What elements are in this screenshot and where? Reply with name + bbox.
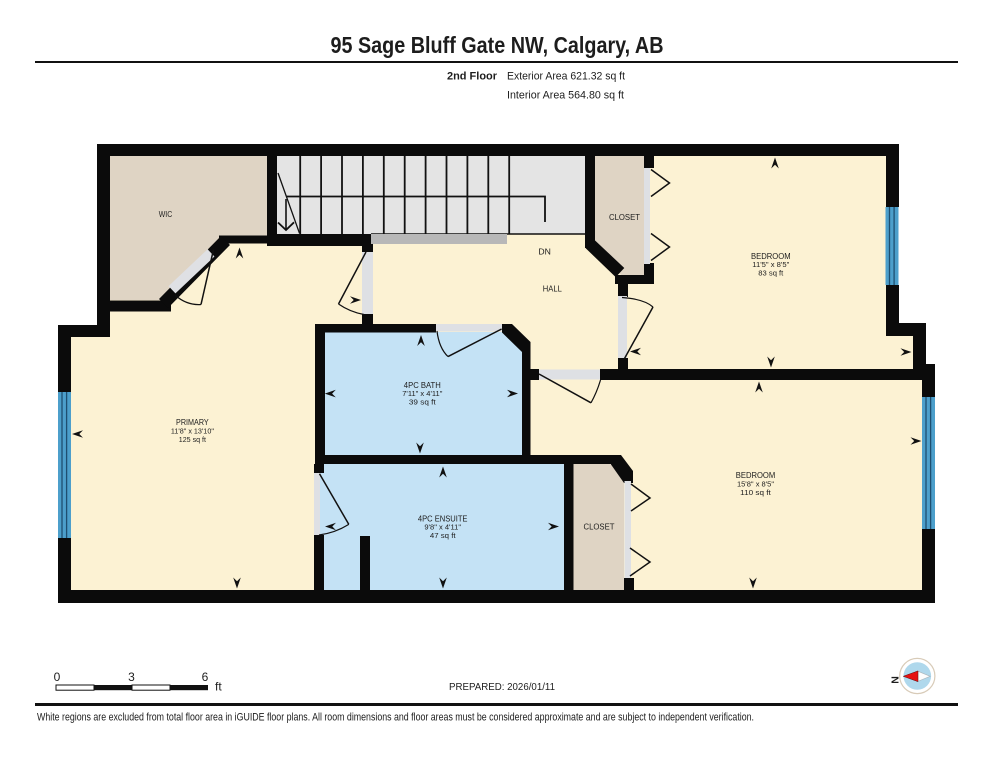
svg-text:CLOSET: CLOSET: [584, 523, 615, 532]
svg-text:39 sq ft: 39 sq ft: [409, 397, 437, 406]
svg-text:47 sq ft: 47 sq ft: [430, 531, 457, 540]
svg-text:2nd Floor: 2nd Floor: [447, 71, 498, 83]
svg-text:Interior Area 564.80 sq ft: Interior Area 564.80 sq ft: [507, 90, 625, 102]
svg-text:110 sq ft: 110 sq ft: [740, 488, 772, 497]
svg-text:N: N: [889, 676, 901, 684]
svg-text:PREPARED: 2026/01/11: PREPARED: 2026/01/11: [449, 681, 555, 693]
svg-text:HALL: HALL: [543, 285, 563, 294]
svg-text:CLOSET: CLOSET: [609, 213, 640, 222]
svg-text:95 Sage Bluff Gate NW, Calgary: 95 Sage Bluff Gate NW, Calgary, AB: [331, 32, 664, 58]
svg-text:WIC: WIC: [159, 210, 173, 219]
svg-text:125 sq ft: 125 sq ft: [179, 435, 207, 444]
svg-text:83 sq ft: 83 sq ft: [758, 269, 784, 278]
svg-text:Exterior Area 621.32 sq ft: Exterior Area 621.32 sq ft: [507, 71, 626, 83]
svg-text:ft: ft: [215, 680, 222, 694]
svg-text:White regions are excluded fro: White regions are excluded from total fl…: [37, 711, 754, 723]
svg-text:DN: DN: [538, 248, 551, 257]
svg-text:6: 6: [202, 670, 209, 684]
svg-text:0: 0: [54, 670, 61, 684]
svg-text:3: 3: [128, 670, 135, 684]
